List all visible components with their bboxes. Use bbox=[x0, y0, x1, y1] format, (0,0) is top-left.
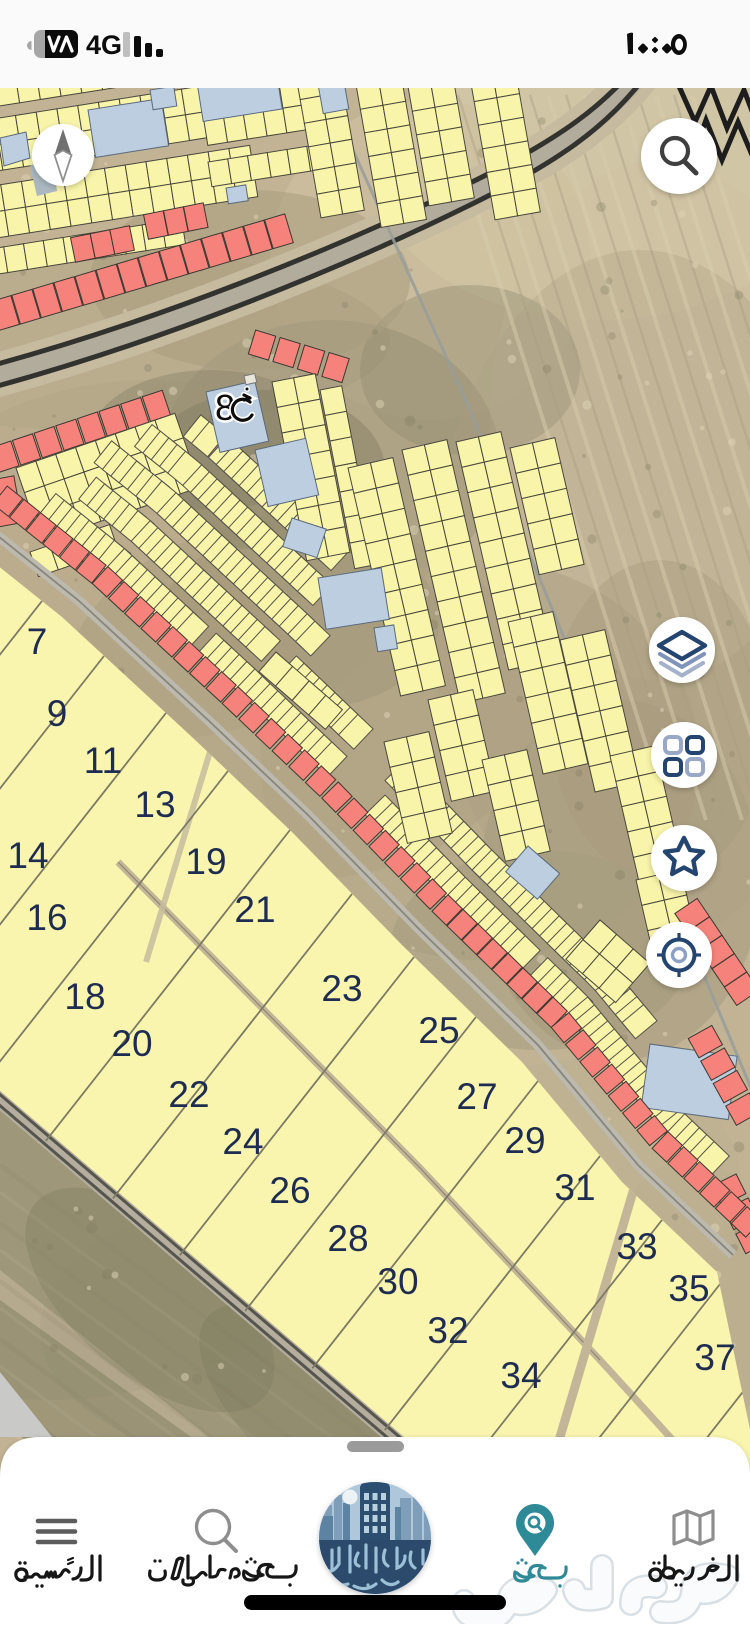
svg-text:16: 16 bbox=[26, 897, 67, 938]
svg-text:14: 14 bbox=[7, 835, 48, 876]
svg-text:21: 21 bbox=[234, 889, 275, 930]
svg-text:32: 32 bbox=[427, 1310, 468, 1351]
svg-text:24: 24 bbox=[222, 1121, 263, 1162]
svg-text:37: 37 bbox=[694, 1337, 735, 1378]
svg-text:4G: 4G bbox=[86, 30, 122, 60]
svg-text:26: 26 bbox=[269, 1170, 310, 1211]
svg-text:31: 31 bbox=[554, 1167, 595, 1208]
svg-text:11: 11 bbox=[84, 740, 122, 781]
svg-text:25: 25 bbox=[418, 1010, 459, 1051]
svg-text:28: 28 bbox=[327, 1218, 368, 1259]
svg-text:22: 22 bbox=[168, 1074, 209, 1115]
svg-text:7: 7 bbox=[27, 621, 48, 662]
svg-text:19: 19 bbox=[185, 841, 226, 882]
svg-text:33: 33 bbox=[616, 1226, 657, 1267]
svg-text:34: 34 bbox=[500, 1355, 541, 1396]
svg-text:20: 20 bbox=[111, 1023, 152, 1064]
svg-text:13: 13 bbox=[134, 784, 175, 825]
svg-text:23: 23 bbox=[321, 968, 362, 1009]
svg-text:29: 29 bbox=[504, 1120, 545, 1161]
svg-text:18: 18 bbox=[64, 976, 105, 1017]
svg-text:9: 9 bbox=[47, 693, 68, 734]
svg-text:30: 30 bbox=[377, 1261, 418, 1302]
svg-text:27: 27 bbox=[456, 1076, 497, 1117]
svg-text:35: 35 bbox=[668, 1268, 709, 1309]
